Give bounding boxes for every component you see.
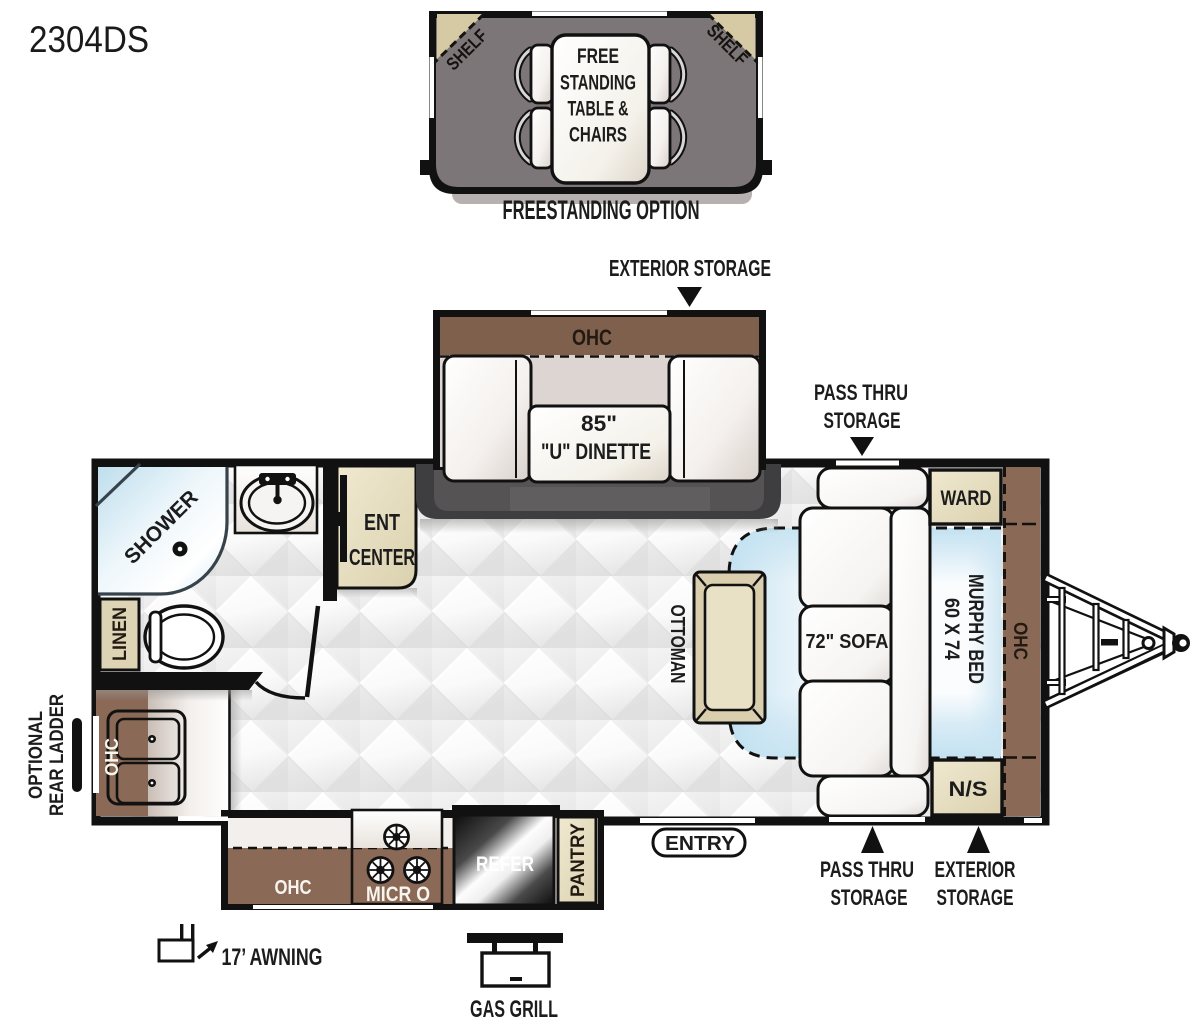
svg-text:CENTER: CENTER xyxy=(349,544,415,570)
svg-text:OHC: OHC xyxy=(572,325,612,350)
svg-text:PASS THRU: PASS THRU xyxy=(814,380,908,405)
svg-text:85": 85" xyxy=(581,411,617,436)
svg-text:FREESTANDING OPTION: FREESTANDING OPTION xyxy=(503,195,700,225)
svg-text:STANDING: STANDING xyxy=(560,72,636,95)
svg-text:REAR LADDER: REAR LADDER xyxy=(47,694,68,816)
svg-text:STORAGE: STORAGE xyxy=(831,885,908,910)
svg-text:PANTRY: PANTRY xyxy=(568,823,589,897)
svg-text:LINEN: LINEN xyxy=(110,607,131,661)
svg-text:EXTERIOR: EXTERIOR xyxy=(935,857,1016,882)
svg-text:EXTERIOR STORAGE: EXTERIOR STORAGE xyxy=(609,255,771,281)
svg-text:17’ AWNING: 17’ AWNING xyxy=(222,944,323,971)
svg-text:STORAGE: STORAGE xyxy=(824,408,901,433)
svg-text:60 X 74: 60 X 74 xyxy=(940,598,963,660)
svg-text:OTTOMAN: OTTOMAN xyxy=(666,605,688,684)
svg-text:72" SOFA: 72" SOFA xyxy=(806,631,889,653)
svg-text:WARD: WARD xyxy=(941,487,992,510)
svg-text:OHC: OHC xyxy=(102,738,122,776)
svg-text:MICR O: MICR O xyxy=(366,883,430,906)
svg-text:REFER: REFER xyxy=(476,853,534,876)
svg-text:GAS GRILL: GAS GRILL xyxy=(470,996,558,1023)
svg-text:FREE: FREE xyxy=(577,45,619,68)
svg-text:STORAGE: STORAGE xyxy=(937,885,1014,910)
svg-text:ENT: ENT xyxy=(364,509,400,535)
svg-text:CHAIRS: CHAIRS xyxy=(569,124,627,147)
svg-text:PASS THRU: PASS THRU xyxy=(820,857,914,882)
svg-text:"U" DINETTE: "U" DINETTE xyxy=(541,439,651,464)
svg-text:MURPHY BED: MURPHY BED xyxy=(964,574,987,684)
svg-text:OHC: OHC xyxy=(275,877,312,899)
svg-text:ENTRY: ENTRY xyxy=(665,833,736,855)
svg-text:2304DS: 2304DS xyxy=(29,19,149,60)
svg-text:N/S: N/S xyxy=(949,778,988,801)
svg-text:OPTIONAL: OPTIONAL xyxy=(26,711,47,799)
svg-text:TABLE &: TABLE & xyxy=(568,98,629,121)
svg-text:OHC: OHC xyxy=(1009,622,1030,660)
